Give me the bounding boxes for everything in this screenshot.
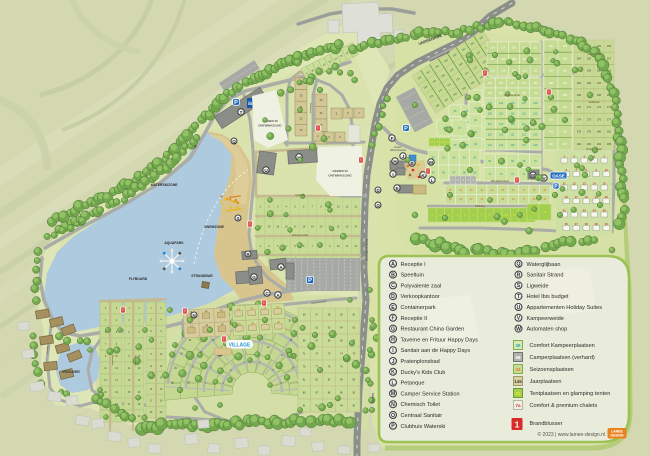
svg-text:286: 286 — [549, 82, 554, 85]
svg-text:179: 179 — [587, 131, 592, 134]
svg-text:123: 123 — [533, 133, 538, 136]
svg-text:219: 219 — [501, 47, 506, 50]
svg-text:G: G — [252, 275, 256, 280]
svg-text:108: 108 — [533, 102, 538, 105]
svg-text:Hotel Ibis budget: Hotel Ibis budget — [527, 294, 569, 300]
svg-text:115: 115 — [499, 123, 504, 126]
svg-text:Restaurant China Garden: Restaurant China Garden — [401, 327, 465, 333]
svg-text:170: 170 — [577, 106, 582, 109]
svg-text:OASE: OASE — [552, 173, 565, 178]
svg-text:124: 124 — [488, 144, 493, 147]
svg-text:F: F — [391, 136, 394, 141]
svg-text:1: 1 — [515, 420, 520, 430]
svg-text:294: 294 — [549, 131, 554, 134]
svg-text:M: M — [391, 391, 395, 397]
svg-text:236: 236 — [499, 92, 504, 95]
svg-text:Pompierstraat: Pompierstraat — [586, 148, 602, 151]
svg-text:281: 281 — [563, 45, 568, 48]
svg-text:Chemisch Toilet: Chemisch Toilet — [401, 402, 441, 408]
svg-text:181: 181 — [607, 131, 612, 134]
svg-text:K: K — [391, 370, 395, 376]
svg-text:D: D — [376, 188, 379, 193]
svg-text:Kloosterstraat: Kloosterstraat — [504, 94, 520, 97]
svg-text:Kampeerstraat: Kampeerstraat — [292, 234, 308, 237]
svg-text:125: 125 — [499, 144, 504, 147]
svg-text:P: P — [308, 278, 312, 284]
svg-text:VILLAGE: VILLAGE — [229, 343, 251, 349]
svg-text:228: 228 — [490, 69, 495, 72]
svg-text:238: 238 — [522, 92, 527, 95]
svg-text:230: 230 — [488, 82, 493, 85]
svg-text:157: 157 — [607, 57, 612, 60]
svg-text:110: 110 — [499, 113, 504, 116]
svg-text:172: 172 — [597, 106, 602, 109]
svg-text:183: 183 — [587, 143, 592, 146]
svg-text:l: l — [249, 222, 250, 227]
svg-text:176: 176 — [597, 118, 602, 121]
svg-text:234: 234 — [533, 82, 538, 85]
svg-text:164: 164 — [597, 82, 602, 85]
svg-text:l: l — [223, 337, 224, 342]
svg-text:ONTWIKKELING: ONTWIKKELING — [258, 124, 282, 128]
svg-text:Automaten shop: Automaten shop — [527, 327, 568, 333]
svg-text:D: D — [391, 294, 395, 300]
svg-text:Seizoensplaatsen: Seizoensplaatsen — [530, 367, 574, 373]
svg-text:162: 162 — [577, 82, 582, 85]
svg-text:Waterkant: Waterkant — [111, 355, 114, 366]
svg-text:Westkampstraat: Westkampstraat — [491, 180, 509, 183]
svg-text:U: U — [517, 305, 521, 311]
svg-text:105: 105 — [499, 102, 504, 105]
svg-text:34: 34 — [515, 367, 521, 372]
svg-text:178: 178 — [577, 131, 582, 134]
svg-text:E: E — [391, 305, 395, 311]
svg-text:© 2023 | www.lamee-design.nl: © 2023 | www.lamee-design.nl — [537, 431, 605, 438]
svg-text:222: 222 — [534, 47, 539, 50]
svg-text:239: 239 — [533, 92, 538, 95]
svg-text:Witte Duivelst: Witte Duivelst — [390, 149, 406, 152]
svg-text:297: 297 — [563, 143, 568, 146]
svg-text:232: 232 — [534, 69, 539, 72]
svg-text:107: 107 — [522, 102, 527, 105]
svg-text:Ligweide: Ligweide — [527, 283, 549, 289]
svg-text:WATERSKIZONE: WATERSKIZONE — [150, 183, 178, 187]
svg-text:Speeltuin: Speeltuin — [401, 273, 424, 279]
svg-text:L: L — [431, 178, 434, 183]
svg-text:B: B — [391, 272, 395, 278]
svg-text:Zeeweg: Zeeweg — [371, 393, 375, 404]
svg-text:218: 218 — [490, 47, 495, 50]
svg-text:J: J — [392, 359, 395, 365]
svg-text:291: 291 — [563, 106, 568, 109]
svg-text:P: P — [554, 184, 558, 190]
svg-text:163: 163 — [587, 82, 592, 85]
svg-text:175: 175 — [587, 118, 592, 121]
svg-text:Molenstraat: Molenstraat — [588, 53, 601, 56]
svg-text:127: 127 — [522, 144, 527, 147]
svg-text:Pratenplonsbad: Pratenplonsbad — [401, 359, 440, 365]
svg-text:DESIGN: DESIGN — [611, 434, 625, 438]
svg-text:Veldstraat: Veldstraat — [309, 103, 312, 114]
svg-text:G: G — [391, 326, 395, 332]
svg-text:l: l — [516, 178, 517, 183]
svg-text:280: 280 — [549, 45, 554, 48]
svg-text:ONTWIKKELING: ONTWIKKELING — [328, 174, 352, 178]
svg-text:Comfort Kampeerplaatsen: Comfort Kampeerplaatsen — [530, 343, 595, 349]
svg-text:224: 224 — [501, 58, 506, 61]
svg-text:l: l — [427, 169, 428, 174]
svg-text:182: 182 — [577, 143, 582, 146]
svg-text:P: P — [234, 100, 238, 106]
svg-text:171: 171 — [587, 106, 592, 109]
svg-text:145: 145 — [514, 379, 522, 384]
svg-text:l: l — [484, 71, 485, 76]
svg-text:T: T — [240, 110, 243, 115]
svg-text:V: V — [517, 316, 521, 322]
svg-text:Dijkweg: Dijkweg — [46, 346, 48, 355]
svg-text:174: 174 — [577, 118, 582, 121]
svg-text:122: 122 — [522, 133, 527, 136]
svg-text:7a: 7a — [515, 403, 521, 408]
svg-text:l: l — [263, 301, 264, 306]
svg-text:Sanitair Strand: Sanitair Strand — [527, 273, 564, 279]
svg-text:GEBIED IN: GEBIED IN — [332, 169, 347, 173]
svg-text:W: W — [516, 326, 521, 332]
svg-text:Oeverlaan: Oeverlaan — [134, 355, 136, 366]
svg-text:292: 292 — [549, 118, 554, 121]
svg-text:232: 232 — [510, 82, 515, 85]
svg-text:184: 184 — [597, 143, 602, 146]
svg-text:154: 154 — [577, 57, 582, 60]
svg-text:Veldstraat: Veldstraat — [589, 101, 600, 104]
svg-text:126: 126 — [510, 144, 515, 147]
svg-text:296: 296 — [549, 143, 554, 146]
svg-text:111: 111 — [511, 113, 515, 116]
svg-text:Appartementen Holiday Suites: Appartementen Holiday Suites — [527, 305, 603, 311]
svg-text:Camperplaatsen (verhard): Camperplaatsen (verhard) — [530, 355, 595, 361]
svg-text:227: 227 — [534, 58, 539, 61]
svg-text:Receptie II: Receptie II — [401, 316, 428, 322]
svg-text:225: 225 — [512, 58, 517, 61]
svg-text:C: C — [391, 283, 395, 289]
svg-text:112: 112 — [522, 113, 527, 116]
svg-text:116: 116 — [511, 123, 516, 126]
svg-text:l: l — [184, 309, 185, 314]
svg-text:E: E — [395, 186, 398, 191]
svg-text:Tentplaatsen en glamping tente: Tentplaatsen en glamping tenten — [530, 391, 611, 397]
svg-text:I: I — [392, 172, 393, 177]
svg-text:233: 233 — [522, 82, 527, 85]
svg-text:128: 128 — [533, 144, 538, 147]
svg-text:Polyvalente zaal: Polyvalente zaal — [401, 283, 442, 289]
svg-text:109: 109 — [488, 113, 493, 116]
svg-text:AQUAPARK: AQUAPARK — [164, 241, 184, 245]
svg-text:R: R — [517, 272, 521, 278]
svg-text:114: 114 — [488, 123, 493, 126]
svg-text:Waterglijbaan: Waterglijbaan — [527, 262, 561, 268]
svg-text:Sanitair aan de Happy Days: Sanitair aan de Happy Days — [401, 348, 471, 354]
svg-text:220: 220 — [512, 47, 517, 50]
svg-text:Containerpark: Containerpark — [401, 305, 436, 311]
svg-text:Comfort & premium chalets: Comfort & premium chalets — [530, 403, 598, 409]
svg-text:113: 113 — [533, 113, 538, 116]
svg-text:36: 36 — [515, 343, 521, 348]
svg-text:J: J — [402, 154, 405, 159]
svg-text:155: 155 — [587, 57, 592, 60]
svg-text:S: S — [237, 216, 240, 221]
svg-text:289: 289 — [563, 94, 568, 97]
svg-text:H: H — [391, 337, 395, 343]
svg-text:284: 284 — [549, 70, 554, 73]
svg-text:l: l — [548, 90, 549, 95]
svg-text:121: 121 — [510, 133, 515, 136]
svg-text:185: 185 — [607, 143, 612, 146]
svg-text:F: F — [391, 316, 394, 322]
svg-text:Clubhuis Waterski: Clubhuis Waterski — [401, 424, 446, 430]
svg-text:L: L — [391, 380, 394, 386]
svg-text:Brandblusser: Brandblusser — [530, 421, 563, 427]
svg-text:180: 180 — [597, 131, 602, 134]
svg-text:Kampeerweide: Kampeerweide — [527, 316, 564, 322]
svg-text:STRANDBAR: STRANDBAR — [191, 274, 213, 278]
svg-text:235: 235 — [488, 92, 493, 95]
svg-text:58: 58 — [515, 355, 521, 360]
svg-text:168: 168 — [597, 94, 602, 97]
svg-text:FLYBOARD: FLYBOARD — [129, 277, 148, 281]
svg-text:283: 283 — [563, 57, 568, 60]
svg-text:166: 166 — [577, 94, 582, 97]
svg-text:Camper Service Station: Camper Service Station — [401, 391, 460, 397]
svg-text:Parkweg: Parkweg — [475, 206, 485, 208]
svg-text:177: 177 — [607, 118, 612, 121]
svg-text:173: 173 — [607, 106, 612, 109]
svg-text:Taverne en Frituur Happy Days: Taverne en Frituur Happy Days — [401, 337, 479, 343]
svg-text:A: A — [391, 262, 395, 268]
svg-text:N: N — [391, 402, 395, 408]
svg-text:119: 119 — [488, 133, 493, 136]
svg-text:P: P — [404, 126, 408, 132]
svg-text:Zandvoordestraat: Zandvoordestraat — [365, 239, 369, 261]
svg-text:159: 159 — [587, 70, 592, 73]
svg-text:O: O — [391, 413, 395, 419]
svg-text:Jaarplaatsen: Jaarplaatsen — [530, 379, 562, 385]
svg-text:VISVIJVER: VISVIJVER — [62, 370, 80, 374]
svg-text:287: 287 — [563, 82, 568, 85]
svg-text:Hofbaan: Hofbaan — [295, 195, 305, 197]
svg-text:Q: Q — [517, 262, 521, 268]
svg-text:l: l — [360, 158, 361, 163]
svg-text:231: 231 — [499, 82, 504, 85]
svg-text:Centraal Sanitair: Centraal Sanitair — [401, 413, 443, 419]
svg-text:295: 295 — [563, 131, 568, 134]
svg-text:Receptie I: Receptie I — [401, 262, 427, 268]
svg-text:Petanque: Petanque — [401, 381, 425, 387]
svg-text:229: 229 — [501, 69, 506, 72]
svg-text:l: l — [317, 126, 318, 131]
svg-text:S: S — [517, 283, 521, 289]
svg-text:223: 223 — [490, 58, 495, 61]
svg-text:285: 285 — [563, 70, 568, 73]
svg-text:153: 153 — [607, 45, 612, 48]
svg-text:120: 120 — [499, 133, 504, 136]
svg-text:N: N — [192, 313, 195, 318]
svg-text:l: l — [122, 308, 123, 313]
svg-text:P: P — [391, 424, 395, 430]
svg-text:Verkoopkantoor: Verkoopkantoor — [401, 294, 440, 300]
svg-text:M: M — [429, 160, 433, 165]
svg-text:Ducky's Kids Club: Ducky's Kids Club — [401, 370, 446, 376]
svg-text:21: 21 — [515, 391, 521, 396]
svg-text:231: 231 — [523, 69, 528, 72]
svg-text:ZWEMZONE: ZWEMZONE — [204, 225, 225, 229]
